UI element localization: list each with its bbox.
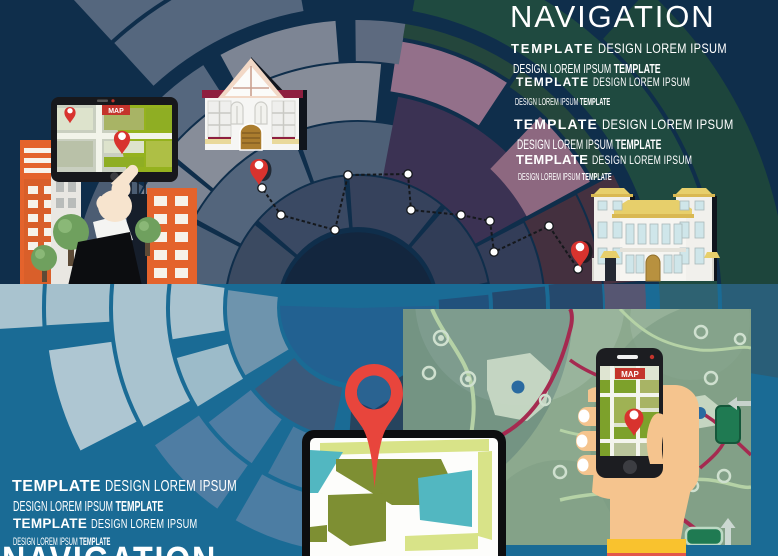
svg-text:MAP: MAP <box>621 370 639 379</box>
svg-text:MAP: MAP <box>108 108 124 115</box>
